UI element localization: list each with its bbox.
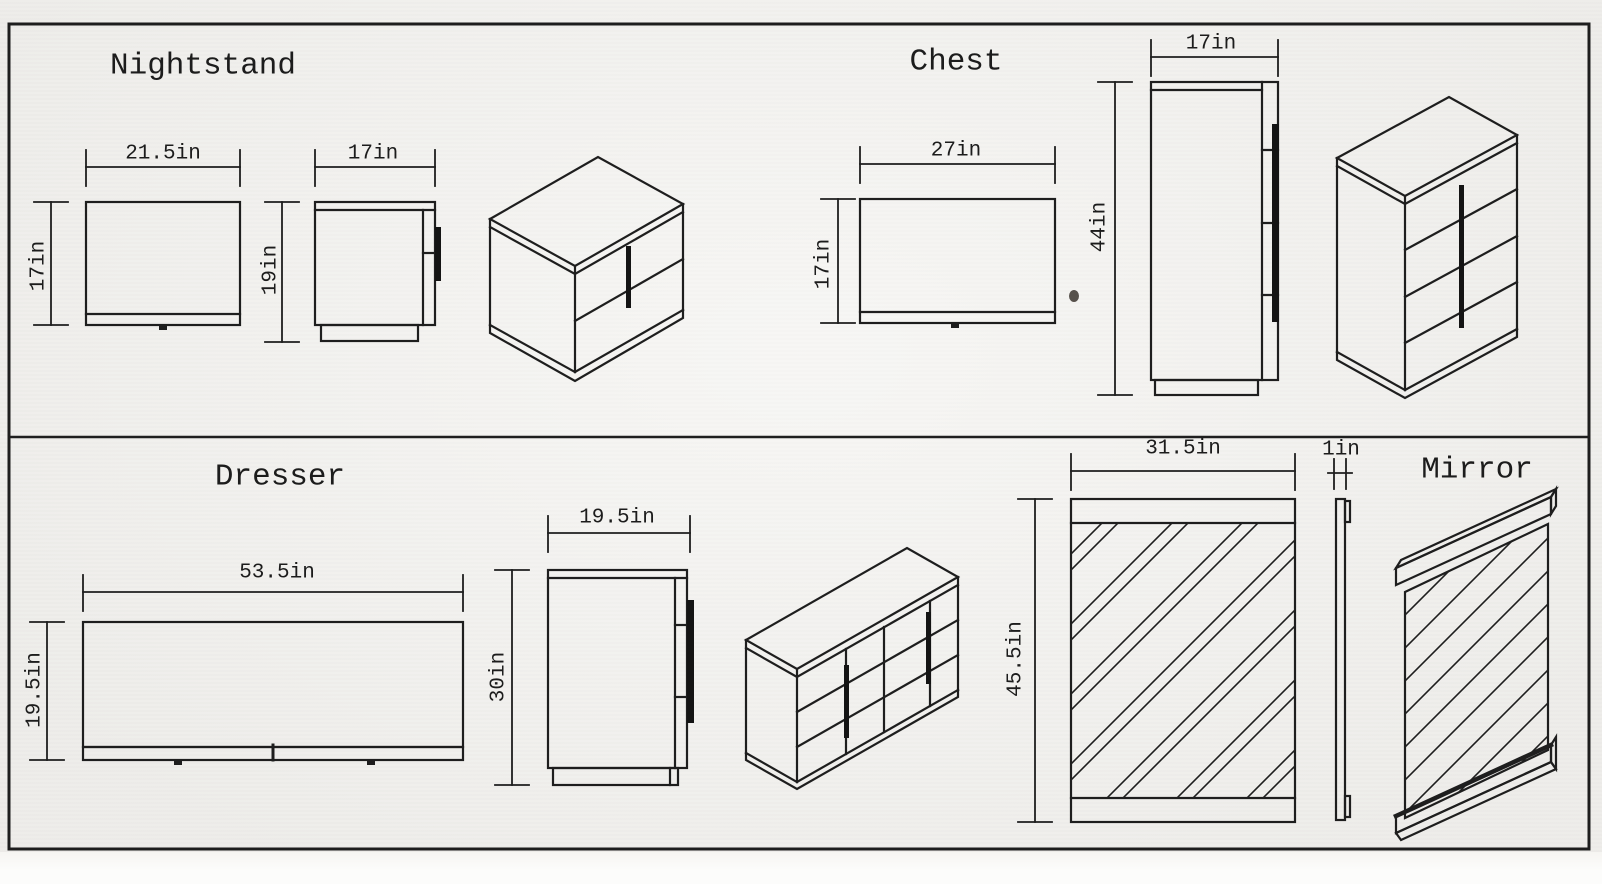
chest-title: Chest: [909, 45, 1002, 80]
drawing-canvas: [0, 0, 1602, 884]
ink-smudge: [1069, 290, 1079, 302]
mirror-front-dimensions: [1018, 454, 1295, 822]
dresser-front-dimensions: [30, 575, 463, 760]
chest-side-height-label: 44in: [1089, 202, 1112, 252]
dresser-front-view: [83, 622, 463, 765]
nightstand-iso-view: [490, 157, 683, 381]
dresser-side-width-label: 19.5in: [579, 507, 655, 530]
mirror-title: Mirror: [1421, 453, 1533, 488]
dresser-title: Dresser: [215, 460, 345, 495]
dresser-front-width-label: 53.5in: [239, 562, 315, 585]
nightstand-front-dimensions: [34, 150, 240, 325]
furniture-dimension-sheet: Nightstand Chest Dresser Mirror 21.5in 1…: [0, 0, 1602, 884]
nightstand-title: Nightstand: [110, 49, 296, 84]
chest-front-width-label: 27in: [931, 140, 981, 163]
dresser-iso-view: [746, 548, 958, 789]
chest-side-width-label: 17in: [1186, 33, 1236, 56]
dresser-front-height-label: 19.5in: [24, 652, 47, 728]
scan-edge-band: [0, 852, 1602, 884]
chest-side-view: [1151, 82, 1279, 395]
mirror-thickness-label: 1in: [1322, 439, 1360, 462]
chest-front-dimensions: [821, 147, 1055, 323]
chest-front-height-label: 17in: [813, 239, 836, 289]
nightstand-side-height-label: 19in: [260, 245, 283, 295]
chest-front-view: [860, 199, 1055, 328]
mirror-front-width-label: 31.5in: [1145, 438, 1221, 461]
nightstand-side-dimensions: [265, 150, 435, 342]
nightstand-front-width-label: 21.5in: [125, 143, 201, 166]
nightstand-side-view: [315, 202, 441, 341]
mirror-iso-hatching: [1140, 430, 1602, 880]
dresser-side-dimensions: [495, 516, 690, 785]
mirror-thickness-dimension: [1328, 459, 1352, 489]
nightstand-side-width-label: 17in: [348, 143, 398, 166]
chest-iso-view: [1337, 97, 1517, 398]
mirror-front-height-label: 45.5in: [1005, 621, 1028, 697]
nightstand-front-height-label: 17in: [28, 241, 51, 291]
nightstand-front-view: [86, 202, 240, 330]
mirror-side-view: [1336, 499, 1350, 820]
chest-side-dimensions: [1098, 40, 1278, 395]
dresser-side-height-label: 30in: [488, 652, 511, 702]
dresser-side-view: [548, 570, 694, 785]
mirror-iso-view: [1140, 430, 1602, 880]
